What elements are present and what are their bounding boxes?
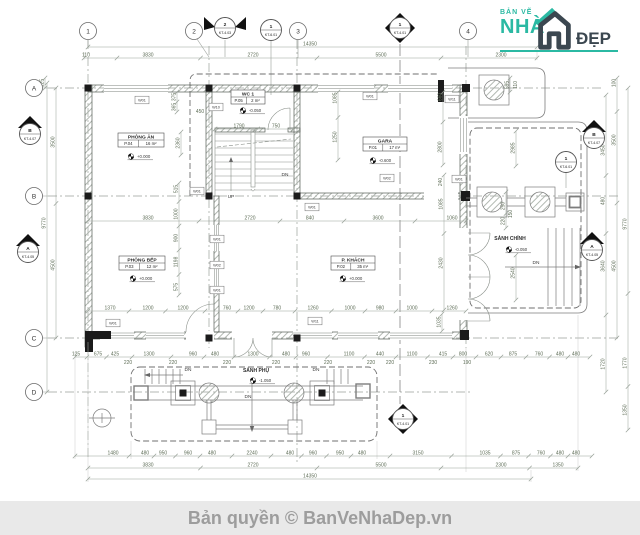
level-symbol <box>240 108 243 111</box>
level-symbol <box>243 111 246 114</box>
dim-label: 660 <box>437 93 443 102</box>
level-symbol <box>370 158 373 161</box>
dim-label: 480 <box>556 450 565 456</box>
dim-label: 450 <box>196 109 205 115</box>
dim-label: 425 <box>111 351 120 357</box>
dim-label: 1770 <box>622 357 628 368</box>
dim-label: 220 <box>500 217 506 226</box>
level-symbol <box>373 161 376 164</box>
level-value: -0.050 <box>249 108 262 113</box>
wall-tag: W01 <box>213 288 221 292</box>
level-symbol <box>133 279 136 282</box>
dim-label: 480 <box>208 450 217 456</box>
dim-label: 1000 <box>173 208 179 219</box>
dim-label: 3640 <box>600 260 606 271</box>
dim-label: 2720 <box>247 462 258 468</box>
marker-number: 2 <box>224 22 227 28</box>
dim-label: 1720 <box>600 358 606 369</box>
dim-label: 2720 <box>247 52 258 58</box>
dim-label: 950 <box>159 450 168 456</box>
dim-label: 900 <box>173 234 179 243</box>
marker-number: 1 <box>399 22 402 28</box>
dim-label: 1035 <box>479 450 490 456</box>
dim-label: 840 <box>306 215 315 221</box>
dim-label: 1085 <box>438 198 444 209</box>
wall-tag: W01 <box>213 237 221 241</box>
dim-label: 3600 <box>372 215 383 221</box>
dim-label: 1200 <box>243 305 254 311</box>
marker-sheet: KT-4.01 <box>397 422 409 426</box>
dim-label: 14350 <box>303 41 317 47</box>
direction-note: DN <box>533 260 540 266</box>
grid-bubble-label: 1 <box>86 28 90 35</box>
marker-number: A <box>26 246 30 252</box>
dim-label: 3150 <box>412 450 423 456</box>
dim-label: 595 <box>504 81 510 90</box>
section-flag <box>204 17 215 30</box>
level-value: -1.050 <box>259 378 272 383</box>
dim-label: 960 <box>302 351 311 357</box>
direction-note: DN <box>185 367 192 373</box>
level-symbol <box>250 378 253 381</box>
dim-label: 240 <box>438 178 444 187</box>
dim-label: 1035 <box>436 316 442 327</box>
dim-label: 3500 <box>50 136 56 147</box>
dim-label: 1250 <box>332 131 338 142</box>
marker-sheet: KT-6.01 <box>265 33 277 37</box>
room-name: SẢNH CHÍNH <box>494 234 526 242</box>
dim-label: 150 <box>508 210 514 219</box>
grid-bubble-label: 3 <box>296 28 300 35</box>
dim-label: 4500 <box>611 260 617 271</box>
dim-label: 1000 <box>406 305 417 311</box>
house-icon <box>534 5 574 51</box>
dim-label: 2800 <box>437 141 443 152</box>
grid-bubble-label: A <box>32 85 37 92</box>
level-symbol <box>506 247 509 250</box>
wall-tag: W02 <box>213 263 221 267</box>
dim-label: 1790 <box>233 123 244 129</box>
dim-label: 760 <box>535 351 544 357</box>
dim-label: 480 <box>211 351 220 357</box>
marker-sheet: KT-4.07 <box>588 141 600 145</box>
dim-label: 750 <box>272 123 281 129</box>
level-value: -0.050 <box>515 247 528 252</box>
wall-tag: W11 <box>311 319 319 323</box>
direction-note: DN <box>313 367 320 373</box>
dim-label: 1085 <box>332 92 338 103</box>
dim-label: 415 <box>439 351 448 357</box>
dim-label: 800 <box>459 351 468 357</box>
direction-note: DN <box>245 394 252 400</box>
dim-label: 2720 <box>244 215 255 221</box>
copyright-text: Bản quyền © BanVeNhaDep.vn <box>188 508 452 528</box>
level-value: -0.600 <box>379 158 392 163</box>
dim-label: 110 <box>513 81 519 89</box>
dim-label: 9770 <box>41 217 47 228</box>
dim-label: 480 <box>286 450 295 456</box>
level-symbol <box>128 154 131 157</box>
dim-label: 480 <box>282 351 291 357</box>
room-name: WC 1 <box>242 91 255 97</box>
room-name: SẢNH PHỤ <box>243 367 270 374</box>
dim-label: 620 <box>485 351 494 357</box>
dim-label: 220 <box>124 360 133 366</box>
dim-label: 1260 <box>446 305 457 311</box>
marker-sheet: KT-6.01 <box>560 165 572 169</box>
dim-label: 960 <box>189 351 198 357</box>
dim-label: 375 <box>171 93 177 102</box>
dim-label: 480 <box>572 450 581 456</box>
dim-label: 875 <box>509 351 518 357</box>
porch-outlines <box>448 68 587 313</box>
grid-bubble-label: D <box>32 389 37 396</box>
level-symbol <box>340 276 343 279</box>
staircase <box>215 128 293 196</box>
dim-label: 365 <box>171 103 177 112</box>
wall-tag: W01 <box>366 94 374 98</box>
section-flag <box>235 17 246 30</box>
dim-label: 3830 <box>142 462 153 468</box>
dim-label: 190 <box>463 360 472 366</box>
dim-label: 125 <box>72 351 81 357</box>
dim-label: 1350 <box>552 462 563 468</box>
dim-label: 220 <box>272 360 281 366</box>
marker-sheet: KT-4.03 <box>219 31 231 35</box>
wall-tag: W10 <box>212 105 220 109</box>
dim-label: 5500 <box>375 52 386 58</box>
dim-label: 3500 <box>611 134 617 145</box>
grid-bubble-label: 4 <box>466 28 470 35</box>
room-code: P.04 <box>124 141 133 146</box>
grid-bubble-label: B <box>32 193 36 200</box>
wall-tag: W01 <box>308 205 316 209</box>
banvenhadep-logo: BẢN VẼ NHÀ ĐẸP <box>498 3 628 53</box>
wall-tag: W01 <box>455 177 463 181</box>
wall-tag: W01 <box>193 189 201 193</box>
dim-label: 1300 <box>143 351 154 357</box>
dim-label: 2300 <box>495 52 506 58</box>
level-symbol <box>131 157 134 160</box>
dim-label: 220 <box>169 360 178 366</box>
marker-number: B <box>28 128 32 134</box>
marker-sheet: KT-4.07 <box>24 137 36 141</box>
room-area: 17 m² <box>389 145 401 150</box>
dim-label: 2540 <box>510 267 516 278</box>
grid-bubble-label: 2 <box>192 28 196 35</box>
floor-plan-page: 1435011038302720550023003830272084036001… <box>0 0 640 535</box>
room-area: 16 m² <box>146 141 158 146</box>
level-value: +0.000 <box>139 276 153 281</box>
marker-number: 1 <box>402 413 405 419</box>
dim-label: 4500 <box>50 259 56 270</box>
dim-label: 760 <box>223 305 232 311</box>
dim-label: 480 <box>600 197 606 206</box>
dim-label: 220 <box>223 360 232 366</box>
survey-marker <box>89 409 115 427</box>
room-code: P.02 <box>337 264 346 269</box>
room-code: P.01 <box>369 145 378 150</box>
dim-label: 950 <box>336 450 345 456</box>
dim-label: 3830 <box>142 215 153 221</box>
level-symbol <box>130 276 133 279</box>
wall-tag: W02 <box>383 176 391 180</box>
dim-label: 1370 <box>104 305 115 311</box>
floor-plan-drawing: 1435011038302720550023003830272084036001… <box>0 0 640 501</box>
dim-label: 1000 <box>344 305 355 311</box>
room-area: 2 m² <box>251 98 260 103</box>
marker-sheet: KT-4.01 <box>394 31 406 35</box>
windows <box>100 86 467 339</box>
dim-label: 1260 <box>307 305 318 311</box>
dim-label: 515 <box>173 185 179 194</box>
dim-label: 440 <box>376 351 385 357</box>
dim-label: 250 <box>500 202 506 211</box>
marker-number: A <box>590 244 594 250</box>
dim-label: 675 <box>94 351 103 357</box>
direction-note: DN <box>282 172 289 178</box>
dim-label: 1060 <box>446 215 457 221</box>
level-symbol <box>343 279 346 282</box>
dim-label: 1350 <box>622 404 628 415</box>
wall-tag: W01 <box>109 321 117 325</box>
direction-note: UP <box>228 194 235 200</box>
room-name: P. KHÁCH <box>341 256 364 263</box>
dim-label: 14350 <box>303 473 317 479</box>
level-value: +0.000 <box>349 276 363 281</box>
dim-label: 5500 <box>375 462 386 468</box>
marker-sheet: KT-4.05 <box>22 255 34 259</box>
dim-label: 9770 <box>622 218 628 229</box>
logo-underline <box>500 50 618 52</box>
room-name: GARA <box>378 138 393 144</box>
dim-label: 1198 <box>173 256 179 267</box>
dim-label: 1100 <box>344 351 355 357</box>
dim-label: 480 <box>358 450 367 456</box>
dim-label: 960 <box>309 450 318 456</box>
dim-label: 480 <box>572 351 581 357</box>
dim-label: 2985 <box>510 142 516 153</box>
dim-label: 780 <box>273 305 282 311</box>
dim-label: 980 <box>376 305 385 311</box>
dim-label: 2300 <box>495 462 506 468</box>
dim-label: 220 <box>367 360 376 366</box>
dim-label: 480 <box>141 450 150 456</box>
room-area: 35 m² <box>357 264 369 269</box>
room-code: P.05 <box>235 98 244 103</box>
level-symbol <box>509 250 512 253</box>
dim-label: 480 <box>556 351 565 357</box>
wall-openings <box>100 84 468 340</box>
entrance-porch <box>466 75 584 306</box>
dim-label: 100 <box>611 79 617 88</box>
dim-label: 1100 <box>407 351 418 357</box>
dim-label: 1200 <box>142 305 153 311</box>
dim-label: 575 <box>173 283 179 292</box>
dim-label: 2240 <box>246 450 257 456</box>
dim-label: 2360 <box>175 137 181 148</box>
wall-tag: W01 <box>138 98 146 102</box>
marker-number: 1 <box>270 24 273 30</box>
marker-sheet: KT-4.05 <box>586 253 598 257</box>
dim-label: 1300 <box>247 351 258 357</box>
dim-label: 230 <box>429 360 438 366</box>
dim-label: 2430 <box>438 257 444 268</box>
wall-tag: W11 <box>448 97 456 101</box>
marker-number: B <box>592 132 596 138</box>
dim-label: 3830 <box>142 52 153 58</box>
grid-bubble-label: C <box>32 335 37 342</box>
dim-label: 760 <box>537 450 546 456</box>
dim-label: 220 <box>386 360 395 366</box>
level-value: +0.000 <box>137 154 151 159</box>
room-area: 12 m² <box>147 264 159 269</box>
dim-label: 875 <box>512 450 521 456</box>
copyright-bar: Bản quyền © BanVeNhaDep.vn <box>0 501 640 535</box>
marker-number: 1 <box>565 156 568 162</box>
dim-label: 220 <box>324 360 333 366</box>
dim-label: 1480 <box>107 450 118 456</box>
level-symbol <box>253 381 256 384</box>
dim-label: 110 <box>82 52 90 58</box>
logo-brand-right: ĐẸP <box>576 30 611 47</box>
room-code: P.03 <box>125 264 134 269</box>
dim-label: 960 <box>184 450 193 456</box>
dim-label: 1200 <box>177 305 188 311</box>
